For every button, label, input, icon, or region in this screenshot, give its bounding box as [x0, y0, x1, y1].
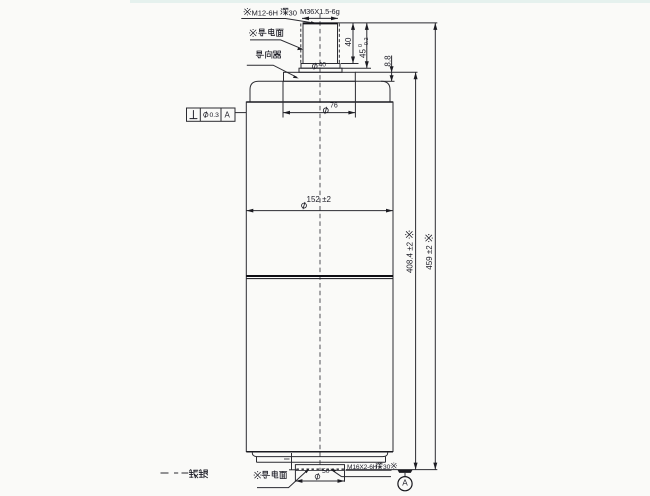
svg-text:30: 30	[289, 8, 297, 17]
svg-text:76: 76	[330, 102, 338, 109]
svg-text:152 ±2: 152 ±2	[307, 195, 332, 204]
svg-text:M12-6H: M12-6H	[252, 8, 278, 17]
svg-text:M36X1.5-6g: M36X1.5-6g	[300, 7, 340, 16]
svg-text:8.8: 8.8	[383, 55, 392, 67]
svg-text:40: 40	[344, 37, 353, 46]
svg-text:50: 50	[322, 468, 330, 475]
svg-text:-0.2: -0.2	[364, 37, 370, 47]
svg-text:0.3: 0.3	[210, 112, 220, 119]
svg-text:A: A	[225, 111, 231, 120]
svg-text:45: 45	[358, 49, 367, 58]
svg-text:408.4 ±2: 408.4 ±2	[406, 241, 415, 273]
svg-text:40: 40	[319, 62, 327, 69]
svg-text:A: A	[402, 479, 408, 488]
svg-text:459 ±2: 459 ±2	[425, 245, 434, 270]
